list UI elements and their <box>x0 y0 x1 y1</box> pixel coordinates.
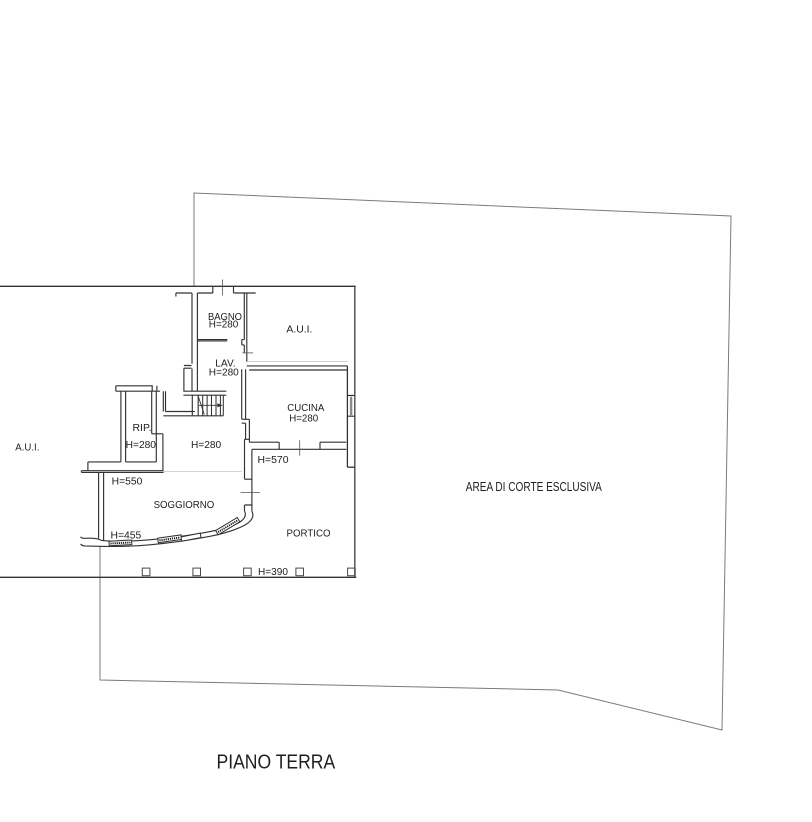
svg-text:A.U.I.: A.U.I. <box>15 443 39 454</box>
svg-text:H=390: H=390 <box>258 567 288 578</box>
svg-text:AREA DI CORTE ESCLUSIVA: AREA DI CORTE ESCLUSIVA <box>466 479 602 494</box>
svg-text:H=280: H=280 <box>191 440 222 451</box>
svg-text:H=550: H=550 <box>112 476 143 487</box>
svg-text:H=570: H=570 <box>258 455 289 466</box>
svg-text:A.U.I.: A.U.I. <box>286 324 312 335</box>
svg-text:H=455: H=455 <box>111 530 142 541</box>
svg-text:H=280: H=280 <box>289 413 318 424</box>
svg-text:H=280: H=280 <box>126 440 157 451</box>
svg-text:SOGGIORNO: SOGGIORNO <box>154 499 215 511</box>
svg-text:H=280: H=280 <box>209 368 239 379</box>
svg-text:RIP.: RIP. <box>133 423 152 434</box>
svg-text:PIANO TERRA: PIANO TERRA <box>217 750 336 773</box>
svg-text:PORTICO: PORTICO <box>287 529 331 540</box>
svg-text:H=280: H=280 <box>209 320 239 331</box>
